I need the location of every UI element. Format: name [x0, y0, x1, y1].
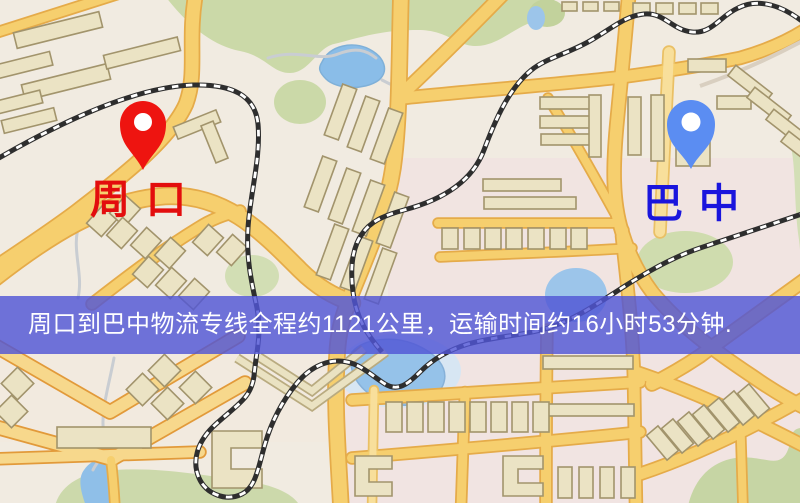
route-info-text: 周口到巴中物流专线全程约1121公里，运输时间约16小时53分钟. [28, 311, 732, 338]
building [428, 402, 444, 432]
building [407, 402, 423, 432]
building [656, 3, 673, 14]
building [562, 2, 577, 11]
building [571, 228, 587, 249]
map-canvas: 周口 巴中 周口到巴中物流专线全程约1121公里，运输时间约16小时53分钟. [0, 0, 800, 503]
building [600, 467, 614, 498]
building [491, 402, 507, 432]
building [328, 168, 361, 224]
building [541, 134, 591, 145]
building [628, 97, 641, 155]
building [604, 2, 619, 11]
building [201, 121, 228, 163]
building [506, 228, 522, 249]
map-background [0, 0, 800, 503]
park [274, 80, 326, 124]
route-info-banner: 周口到巴中物流专线全程约1121公里，运输时间约16小时53分钟. [0, 296, 800, 354]
road [0, 452, 200, 459]
building [470, 402, 486, 432]
pond-small [527, 6, 545, 30]
building [558, 467, 572, 498]
building [542, 404, 634, 416]
building [717, 96, 751, 109]
building [483, 179, 561, 191]
building [589, 95, 601, 157]
building [57, 427, 151, 448]
origin-pin[interactable] [120, 101, 166, 170]
road [111, 460, 115, 503]
building [324, 84, 357, 140]
building [550, 228, 566, 249]
destination-pin-hole [682, 113, 701, 132]
building [449, 402, 465, 432]
building [679, 3, 696, 14]
building [103, 37, 180, 69]
building [347, 96, 380, 152]
building [442, 228, 458, 249]
building [484, 197, 576, 209]
stream [76, 222, 80, 298]
building [543, 356, 633, 369]
origin-city-label: 周口 [90, 179, 202, 221]
destination-city-label: 巴中 [643, 183, 755, 225]
building [316, 224, 349, 280]
building [651, 95, 664, 161]
building [621, 467, 635, 498]
building [688, 59, 726, 72]
building [579, 467, 593, 498]
origin-pin-icon[interactable] [120, 101, 166, 170]
building [533, 402, 549, 432]
building [512, 402, 528, 432]
building [528, 228, 544, 249]
building [701, 3, 718, 14]
building [583, 2, 598, 11]
building [464, 228, 480, 249]
building [485, 228, 501, 249]
building [0, 51, 53, 78]
origin-pin-hole [134, 113, 152, 131]
building [386, 402, 402, 432]
building [304, 156, 337, 212]
